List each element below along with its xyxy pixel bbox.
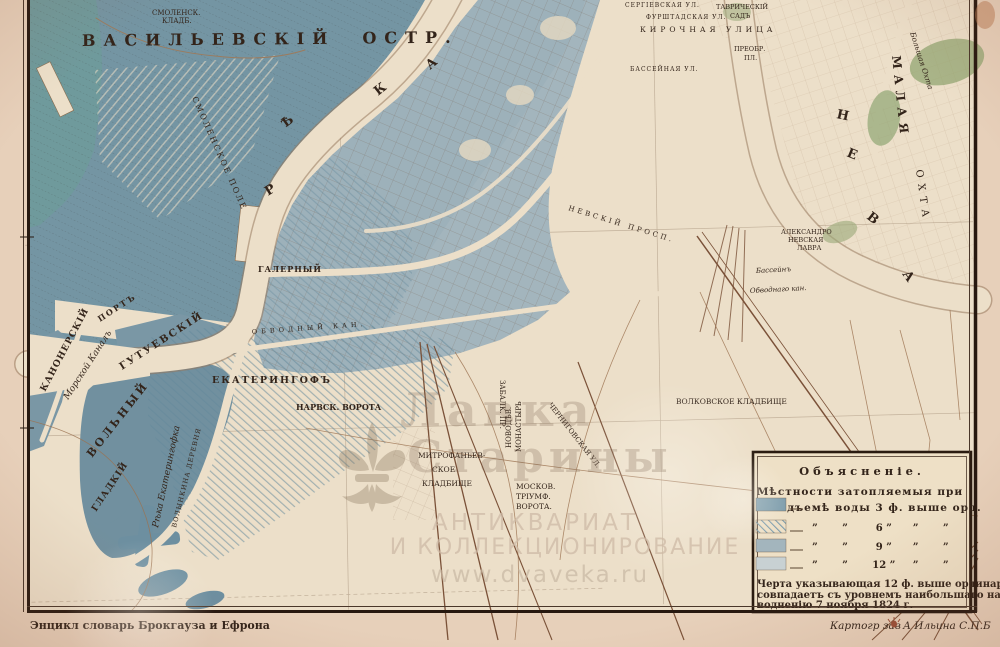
- watermark-url: www.dvaveka.ru: [431, 562, 649, 588]
- watermark-sub-2: И КОЛЛЕКЦИОНИРОВАНИЕ: [390, 535, 740, 560]
- watermark-big-1: Лавка: [400, 383, 595, 437]
- watermark-big-2: Старины: [407, 432, 673, 483]
- watermark-sub-1: АНТИКВАРИАТ: [432, 510, 638, 536]
- antique-map-photo: ВАСИЛЬЕВСКІЙ ОСТР. СМОЛЕНСК. КЛАДБ. СМОЛ…: [0, 0, 1000, 647]
- map-canvas: ВАСИЛЬЕВСКІЙ ОСТР. СМОЛЕНСК. КЛАДБ. СМОЛ…: [0, 0, 1000, 647]
